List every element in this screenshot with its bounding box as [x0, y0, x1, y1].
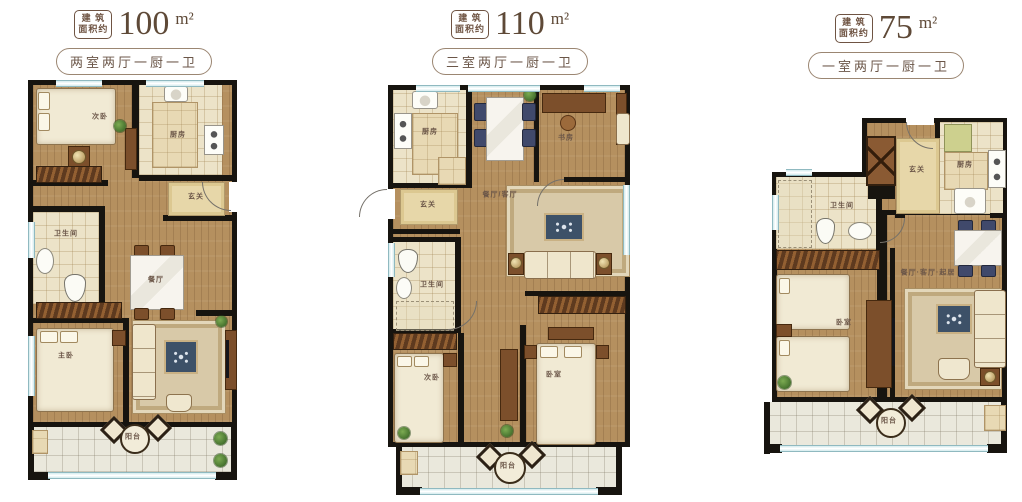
room-label-bedroom-secondary: 次卧: [92, 114, 108, 121]
plan-110-header: 建 筑 面积约 110 m² 三室两厅一厨一卫: [388, 6, 632, 75]
chair-icon: [134, 308, 149, 320]
room-label-bedroom-secondary: 次卧: [424, 375, 440, 382]
fridge-icon: [438, 157, 466, 185]
plant-icon: [214, 432, 227, 445]
room-label-study: 书房: [558, 135, 574, 142]
sink-icon: [848, 222, 872, 240]
nightstand: [776, 324, 792, 337]
sofa-icon: [132, 324, 156, 400]
plan-100-header: 建 筑 面积约 100 m² 两室两厅一厨一卫: [28, 6, 240, 75]
wardrobe-icon: [36, 302, 122, 319]
room-label-kitchen: 厨房: [170, 132, 186, 139]
floor-plan-110: 厨房 书房 餐厅/客厅 玄关 卫生间 次卧: [388, 85, 632, 500]
stove-icon: [394, 113, 412, 149]
hall-cabinet: [500, 349, 518, 421]
pillow-icon: [38, 113, 50, 131]
shower-area: [396, 301, 454, 331]
room-label-balcony: 阳台: [500, 463, 516, 470]
area-value: 100: [118, 6, 169, 42]
window: [28, 336, 35, 396]
decor-bowl: [598, 257, 610, 269]
door-arc-icon: [359, 189, 387, 217]
room-label-balcony: 阳台: [881, 418, 897, 425]
window: [146, 80, 204, 87]
sink-icon: [164, 86, 188, 102]
coffee-table: [164, 340, 198, 374]
plant-icon: [214, 454, 227, 467]
nightstand: [596, 345, 609, 359]
stove-icon: [988, 150, 1006, 188]
window: [772, 195, 779, 230]
wall: [196, 310, 237, 316]
pillow-icon: [779, 278, 790, 294]
room-label-bathroom: 卫生间: [420, 282, 444, 289]
wall: [520, 325, 526, 447]
floor-plan-brochure: 建 筑 面积约 100 m² 两室两厅一厨一卫 建 筑 面积约 110 m² 三…: [0, 0, 1022, 502]
decor-bowl: [984, 371, 996, 383]
coffee-table: [936, 304, 972, 334]
window: [786, 169, 812, 176]
bed-icon: [536, 343, 596, 445]
area-unit: m²: [175, 9, 193, 29]
nightstand: [112, 330, 126, 346]
nightstand: [524, 345, 537, 359]
room-label-dining: 餐厅: [148, 277, 164, 284]
wall: [388, 229, 460, 234]
chaise-icon: [616, 113, 630, 145]
dining-table: [486, 97, 524, 161]
room-label-bedroom: 卧室: [836, 320, 852, 327]
floor-plan-75: 玄关 厨房 卫生间 卧室 餐厅·客厅·起居: [762, 118, 1012, 470]
sink-icon: [396, 277, 412, 299]
pillow-icon: [60, 331, 78, 343]
tv-cabinet: [548, 327, 594, 340]
desk-chair: [560, 115, 576, 131]
desk-icon: [542, 93, 606, 113]
room-label-bathroom: 卫生间: [54, 231, 78, 238]
pillow-icon: [397, 356, 412, 367]
room-label-entry: 玄关: [420, 202, 436, 209]
dining-table: [954, 230, 1002, 266]
sink-icon: [36, 248, 54, 274]
wall: [987, 444, 1007, 453]
room-label-living-dining: 餐厅·客厅·起居: [901, 270, 956, 277]
plant-icon: [114, 120, 126, 132]
layout-pill: 三室两厅一厨一卫: [432, 48, 588, 75]
room-label-bathroom: 卫生间: [830, 203, 854, 210]
plant-icon: [778, 376, 791, 389]
wardrobe-icon: [538, 296, 626, 314]
wall: [28, 206, 105, 212]
pillow-icon: [564, 346, 582, 358]
door-gap: [386, 189, 395, 219]
wall: [215, 472, 237, 480]
window: [584, 85, 620, 92]
pillow-icon: [38, 92, 50, 110]
wall: [388, 237, 458, 242]
plant-icon: [216, 316, 227, 327]
wardrobe-icon: [393, 333, 457, 350]
storage-cabinet: [866, 136, 896, 186]
room-label-bedroom: 卧室: [546, 372, 562, 379]
tv-icon: [892, 318, 895, 366]
armchair-icon: [938, 358, 970, 380]
chair-icon: [522, 129, 536, 147]
window: [416, 85, 460, 92]
area-value: 75: [879, 10, 913, 46]
entry-mat: [896, 138, 940, 214]
wall: [458, 333, 464, 447]
plan-75-header: 建 筑 面积约 75 m² 一室两厅一厨一卫: [762, 10, 1010, 79]
badge-line1: 建 筑: [455, 13, 485, 24]
badge-line2: 面积约: [455, 24, 485, 35]
room-label-kitchen: 厨房: [957, 162, 973, 169]
wall: [564, 177, 630, 182]
hall-cabinet: [125, 128, 137, 170]
tv-icon: [226, 340, 229, 378]
kitchen-counter: [944, 152, 988, 190]
armchair-icon: [166, 394, 192, 412]
window: [623, 185, 630, 255]
plant-icon: [398, 427, 410, 439]
window: [56, 80, 102, 87]
area-badge: 建 筑 面积约: [74, 10, 112, 39]
layout-pill: 两室两厅一厨一卫: [56, 48, 212, 75]
room-label-entry: 玄关: [188, 194, 204, 201]
balcony-cabinet: [32, 430, 48, 454]
pillow-icon: [414, 356, 429, 367]
room-label-entry: 玄关: [909, 167, 925, 174]
window: [780, 445, 988, 452]
tv-cabinet: [866, 300, 892, 388]
badge-line1: 建 筑: [839, 17, 869, 28]
wall: [28, 472, 50, 480]
wall: [231, 427, 237, 476]
sink-icon: [412, 91, 438, 109]
layout-pill: 一室两厅一厨一卫: [808, 52, 964, 79]
wardrobe-icon: [776, 250, 880, 270]
wardrobe-icon: [36, 166, 102, 183]
wall: [396, 487, 422, 495]
chair-icon: [160, 308, 175, 320]
chair-icon: [981, 265, 996, 277]
pillow-icon: [540, 346, 558, 358]
stove-icon: [204, 125, 224, 155]
decor-bowl: [72, 150, 86, 164]
room-label-kitchen: 厨房: [422, 129, 438, 136]
room-label-balcony: 阳台: [125, 434, 141, 441]
wall: [596, 487, 622, 495]
chair-icon: [522, 103, 536, 121]
wall: [99, 206, 105, 306]
window: [388, 243, 395, 277]
sofa-icon: [974, 290, 1006, 368]
pillow-icon: [779, 340, 790, 356]
balcony-cabinet: [984, 405, 1006, 431]
window: [468, 85, 540, 92]
coffee-table: [544, 213, 584, 241]
floor-plan-100: 次卧 厨房 玄关 卫生间 主卧 餐厅: [28, 80, 240, 482]
decor-bowl: [510, 257, 522, 269]
area-value: 110: [495, 6, 545, 42]
area-badge: 建 筑 面积约: [835, 14, 873, 43]
wall: [466, 85, 472, 188]
area-unit: m²: [919, 13, 937, 33]
balcony-cabinet: [400, 451, 418, 475]
window: [48, 472, 216, 479]
area-unit: m²: [551, 9, 569, 29]
appliance-icon: [944, 124, 972, 152]
area-badge: 建 筑 面积约: [451, 10, 489, 39]
plant-icon: [501, 425, 513, 437]
nightstand: [443, 353, 457, 367]
window: [420, 488, 598, 495]
badge-line1: 建 筑: [78, 13, 108, 24]
room-label-bedroom-master: 主卧: [58, 353, 74, 360]
wall: [139, 175, 237, 181]
pillow-icon: [40, 331, 58, 343]
room-label-living-dining: 餐厅/客厅: [483, 192, 518, 199]
chair-icon: [958, 265, 973, 277]
shower-area: [778, 180, 812, 248]
sofa-icon: [524, 251, 596, 279]
window: [28, 222, 35, 258]
badge-line2: 面积约: [839, 28, 869, 39]
badge-line2: 面积约: [78, 24, 108, 35]
sink-icon: [954, 188, 986, 214]
wall: [990, 213, 1007, 218]
